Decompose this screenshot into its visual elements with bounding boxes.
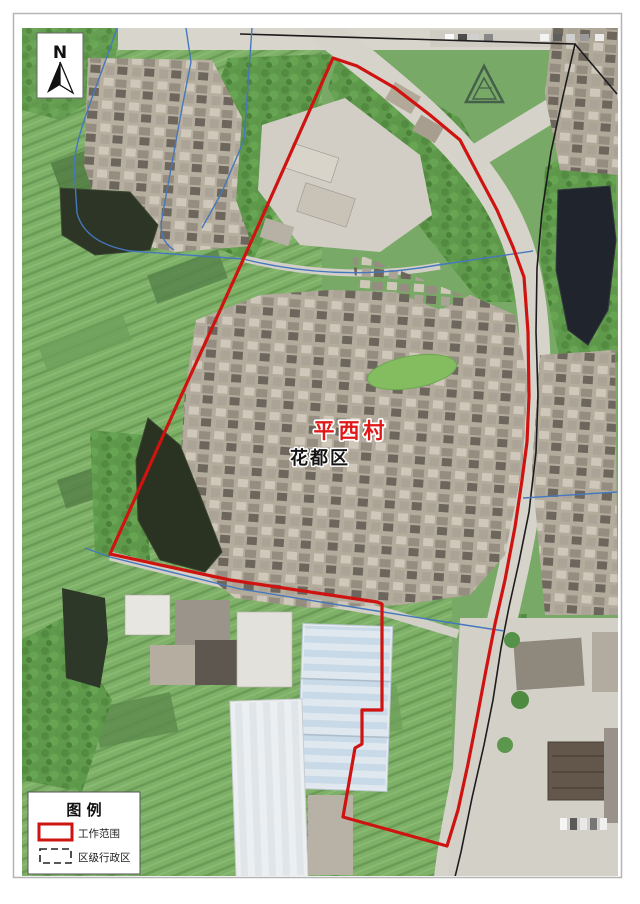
village-label: 平西村 xyxy=(314,419,389,443)
legend-label-work-scope: 工作范围 xyxy=(78,827,120,840)
factory-zone-southeast xyxy=(448,618,618,878)
legend: 图 例 工作范围 区级行政区 xyxy=(28,792,140,874)
satellite-map: 平西村 花都区 N 图 例 工作范围 区级行政区 xyxy=(0,0,640,904)
north-label: N xyxy=(53,43,67,63)
satellite-imagery: 平西村 花都区 N 图 例 工作范围 区级行政区 xyxy=(22,20,618,879)
district-label: 花都区 xyxy=(290,447,350,469)
legend-swatch-admin-district xyxy=(40,849,71,863)
legend-swatch-work-scope xyxy=(39,824,72,840)
legend-label-admin-district: 区级行政区 xyxy=(78,851,131,864)
north-arrow: N xyxy=(37,33,83,98)
satellite-map-page: 平西村 花都区 N 图 例 工作范围 区级行政区 xyxy=(0,0,640,904)
legend-title: 图 例 xyxy=(66,801,101,819)
